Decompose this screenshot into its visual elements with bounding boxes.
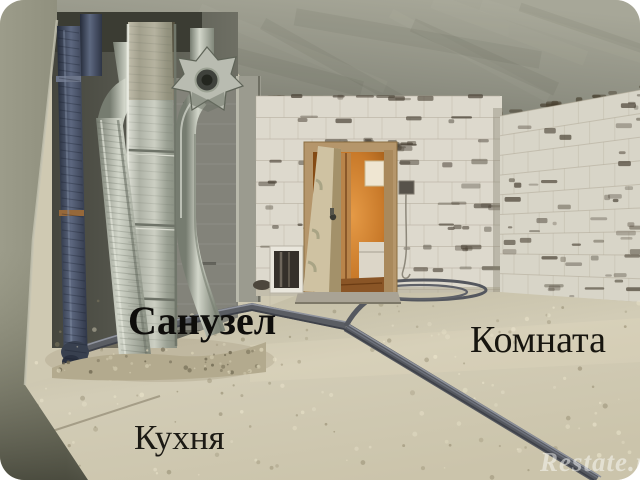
riser-pipe-2 — [80, 14, 102, 76]
construction-photo: Санузел Комната Кухня Restate.ru — [0, 0, 640, 480]
watermark: Restate.ru — [540, 447, 640, 478]
hallway-vent — [365, 161, 384, 186]
label-room: Комната — [470, 318, 606, 362]
right-wall — [500, 90, 640, 324]
screenshot-root: Санузел Комната Кухня Restate.ru — [0, 0, 640, 480]
scene-graphic — [0, 0, 640, 480]
doorway — [295, 142, 401, 303]
threshold — [295, 292, 401, 303]
label-bathroom: Санузел — [128, 297, 276, 344]
label-kitchen: Кухня — [134, 418, 225, 458]
